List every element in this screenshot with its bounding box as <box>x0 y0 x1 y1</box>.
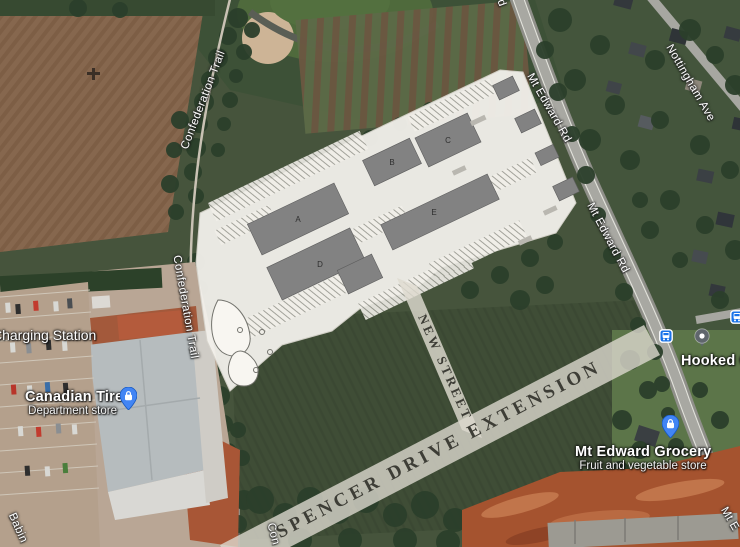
charging-station-text[interactable]: Charging Station <box>0 327 96 343</box>
mt-edward-grocery-label[interactable]: Mt Edward Grocery Fruit and vegetable st… <box>575 444 711 472</box>
canadian-tire-name: Canadian Tire <box>25 389 117 405</box>
bus-stop-icon-1[interactable] <box>659 329 673 343</box>
hooked-label[interactable]: Hooked O <box>681 352 740 370</box>
charging-station-name: Charging Station <box>0 327 96 343</box>
mt-edward-grocery-category: Fruit and vegetable store <box>575 460 711 472</box>
building-label-b: B <box>389 158 394 167</box>
mt-edward-grocery-name: Mt Edward Grocery <box>575 444 711 460</box>
hooked-name: Hooked O <box>681 353 740 369</box>
building-label-e: E <box>431 208 436 217</box>
satellite-map[interactable]: A B C D E NEW STREET SPENCER DRIVE EXTEN… <box>0 0 740 547</box>
building-label-d: D <box>317 260 323 269</box>
hooked-place-pin[interactable] <box>694 328 710 348</box>
canadian-tire-pin[interactable] <box>120 387 137 410</box>
building-label-a: A <box>295 215 301 224</box>
canadian-tire-category: Department store <box>25 405 117 417</box>
canadian-tire-label[interactable]: Canadian Tire Department store <box>25 389 117 417</box>
mt-edward-grocery-pin[interactable] <box>662 415 679 438</box>
building-label-c: C <box>445 136 451 145</box>
bus-stop-icon-2[interactable] <box>730 310 740 324</box>
